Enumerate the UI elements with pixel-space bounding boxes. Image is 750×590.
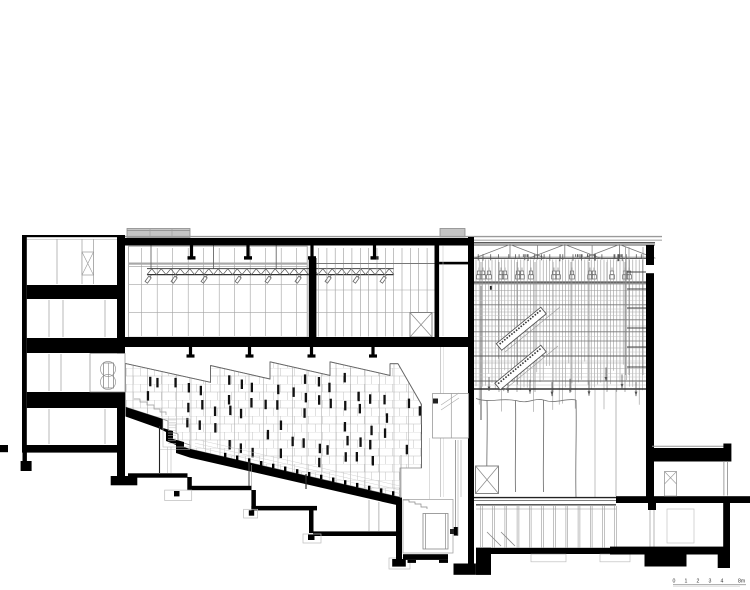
svg-text:1: 1	[685, 579, 688, 585]
svg-text:0: 0	[673, 579, 676, 585]
svg-text:3: 3	[709, 579, 712, 585]
svg-text:2: 2	[697, 579, 700, 585]
svg-text:4: 4	[721, 579, 724, 585]
svg-text:8m: 8m	[738, 579, 745, 585]
